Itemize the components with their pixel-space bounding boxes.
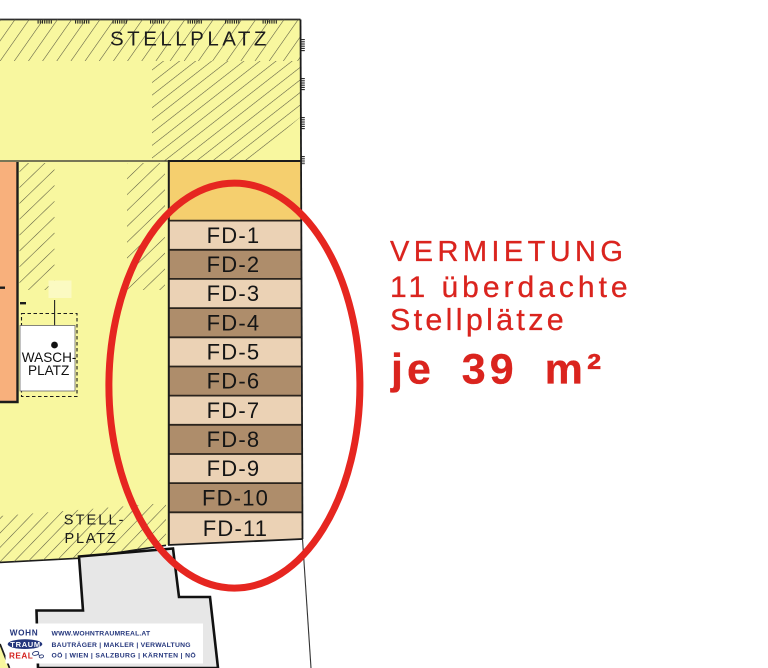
svg-text:FD-9: FD-9 <box>207 456 261 481</box>
svg-text:FD-8: FD-8 <box>207 427 261 452</box>
svg-text:PLATZ: PLATZ <box>28 363 69 378</box>
svg-text:BAUTRÄGER | MAKLER | VERWALTUN: BAUTRÄGER | MAKLER | VERWALTUNG <box>52 641 191 649</box>
svg-text:FD-5: FD-5 <box>207 340 261 365</box>
svg-text:STELLPLATZ: STELLPLATZ <box>110 28 270 51</box>
svg-text:PLATZ: PLATZ <box>65 531 118 547</box>
svg-text:FD-1: FD-1 <box>207 223 261 248</box>
svg-text:Stellplätze: Stellplätze <box>390 303 567 337</box>
svg-text:FD-7: FD-7 <box>207 398 261 423</box>
svg-text:FD-6: FD-6 <box>207 369 261 394</box>
svg-text:REAL: REAL <box>9 651 33 660</box>
svg-text:WWW.WOHNTRAUMREAL.AT: WWW.WOHNTRAUMREAL.AT <box>52 630 151 637</box>
svg-text:FD-3: FD-3 <box>207 281 261 306</box>
svg-text:OÖ | WIEN | SALZBURG | KÄRNTEN: OÖ | WIEN | SALZBURG | KÄRNTEN | NÖ <box>52 651 196 660</box>
svg-text:WOHN: WOHN <box>10 629 39 638</box>
svg-text:11 überdachte: 11 überdachte <box>390 271 632 304</box>
svg-text:FD-4: FD-4 <box>207 310 261 335</box>
svg-text:je 39 m²: je 39 m² <box>390 346 605 394</box>
svg-text:FD-2: FD-2 <box>207 252 261 277</box>
svg-text:TRAUM: TRAUM <box>10 640 41 649</box>
svg-text:STELL-: STELL- <box>64 513 126 529</box>
svg-text:VERMIETUNG: VERMIETUNG <box>390 236 627 268</box>
svg-text:FD-11: FD-11 <box>203 516 269 541</box>
svg-text:FD-10: FD-10 <box>202 485 269 510</box>
